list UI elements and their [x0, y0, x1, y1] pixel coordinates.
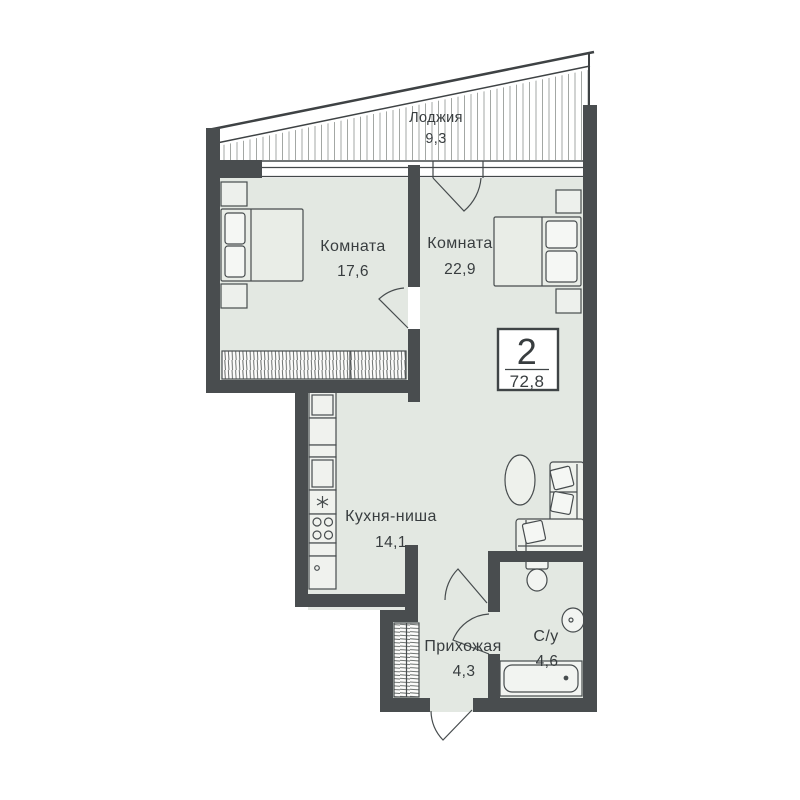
hallway-area: 4,3 [453, 663, 476, 680]
floor-plan-page: 2 72,8 Лоджия 9,3 Комната 17,6 Комната 2… [0, 0, 800, 800]
wall-kitchen-bottom [295, 594, 408, 607]
kitchen-cabinet [309, 418, 336, 445]
stamp-total-area: 72,8 [510, 372, 545, 391]
kitchen-name: Кухня-ниша [345, 508, 437, 525]
nightstand [556, 289, 581, 313]
pillow [550, 466, 574, 490]
toilet-bowl [527, 569, 547, 591]
room-2-area: 22,9 [444, 261, 476, 278]
kitchen-cabinet [309, 392, 336, 418]
wall-bath-left-lower [488, 654, 500, 704]
bathroom-name: С/у [533, 628, 558, 645]
wardrobe [222, 351, 406, 379]
wall-top-left-segment [216, 160, 262, 178]
fridge [309, 556, 336, 589]
hallway-furniture [394, 623, 419, 697]
kitchen-cabinet [309, 543, 336, 556]
hallway-name: Прихожая [424, 638, 501, 655]
kitchen-cabinet [309, 445, 336, 457]
pillow [522, 520, 546, 544]
room-1-area: 17,6 [337, 263, 369, 280]
wall-bottom-left [380, 698, 430, 712]
pillow [225, 213, 245, 244]
nightstand [556, 190, 581, 213]
pillow [546, 221, 577, 248]
nightstand [221, 284, 247, 308]
wall-hall-left [380, 610, 393, 712]
kitchen-area: 14,1 [375, 534, 407, 551]
bathroom-area: 4,6 [536, 653, 559, 670]
nightstand [221, 182, 247, 206]
floor-plan: 2 72,8 Лоджия 9,3 Комната 17,6 Комната 2… [0, 0, 800, 800]
pillow [546, 251, 577, 282]
window-band [214, 160, 588, 178]
pillow [550, 491, 573, 514]
stamp-rooms-count: 2 [517, 331, 537, 372]
wall-right [583, 105, 597, 712]
area-stamp: 2 72,8 [498, 329, 558, 391]
stove [309, 514, 336, 543]
bathtub-drain-icon [564, 676, 568, 680]
wall-kitchen-left [295, 385, 308, 607]
wall-room1-bottom [206, 380, 420, 393]
loggia-name: Лоджия [409, 110, 463, 126]
dining-table [505, 455, 535, 505]
room-1-name: Комната [320, 238, 385, 255]
kitchen-counter [309, 392, 336, 589]
loggia-area: 9,3 [425, 131, 446, 147]
loggia-window-wall [212, 160, 588, 178]
wall-between-rooms-upper [408, 165, 420, 287]
wall-bath-top [488, 551, 583, 562]
kitchen-cabinet [309, 457, 336, 490]
room-2-name: Комната [427, 235, 492, 252]
pillow [225, 246, 245, 277]
